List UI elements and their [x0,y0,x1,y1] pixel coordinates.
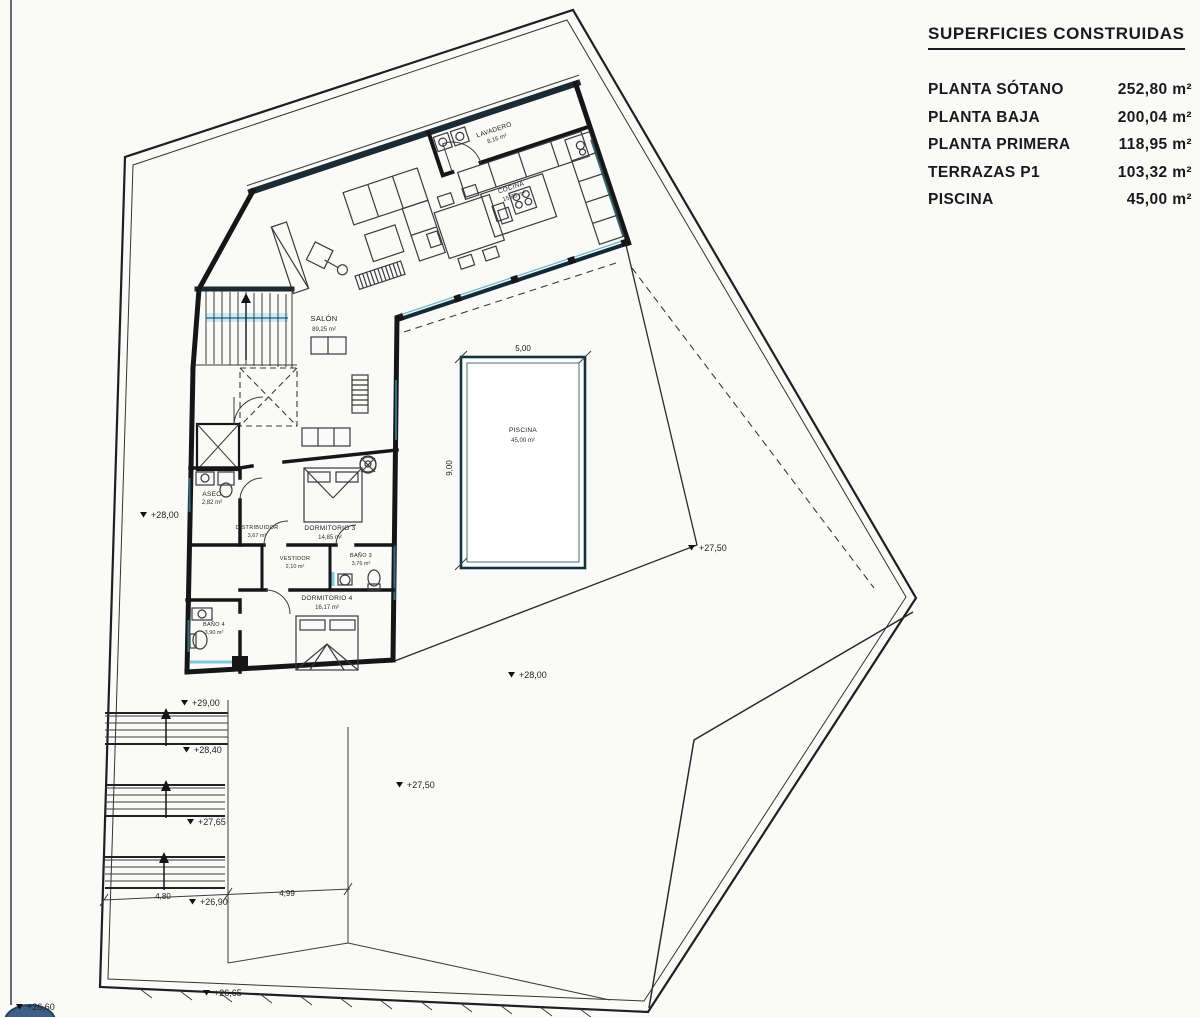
legend-row: PISCINA 45,00 m² [928,186,1192,214]
level-stair-landing1: +28,40 [194,745,222,755]
setback-dashed-line [632,268,874,588]
room-label-bano4: BAÑO 4 [203,621,225,628]
room-area-vestidor: 2,10 m² [286,564,305,570]
level-stair-bottom: +26,90 [200,897,228,907]
page-artifacts [5,0,55,1017]
room-label-bano3: BAÑO 3 [350,552,372,559]
interior-stair [193,289,297,470]
room-label-dormitorio4: DORMITORIO 4 [301,595,352,602]
legend-value: 45,00 m² [1127,186,1192,214]
rug [355,261,405,289]
door-arc-dormitorio4 [266,590,290,614]
armchair [302,238,337,273]
tv-unit [271,222,308,293]
room-label-aseo: ASEO [202,491,221,498]
legend-label: PLANTA SÓTANO [928,76,1064,104]
level-marker-icon [187,819,194,825]
living-kitchen-wing: LAVADERO 8,16 m² COCINA 15,88 m² [247,75,635,353]
level-marker-icon [508,672,515,678]
level-east-garden: +27,50 [699,543,727,553]
level-marker-icon [396,782,403,788]
coffee-table [365,225,404,262]
floor-lamp [324,254,348,279]
ceiling-fan-icon [360,457,376,473]
legend-value: 103,32 m² [1118,159,1192,187]
room-area-distribuidor: 3,67 m² [248,533,267,539]
legend-row: PLANTA BAJA 200,04 m² [928,104,1192,132]
level-west-terrace: +28,00 [151,510,179,520]
room-area-dormitorio3: 14,85 m² [318,535,342,541]
top-wing-walls: LAVADERO 8,16 m² COCINA 15,88 m² [247,75,635,353]
bedroom-wing: ASEO 2,82 m² DISTRIBUIDOR 3,67 m² DORMIT… [187,318,397,672]
bano3-fixtures [333,570,380,590]
legend-value: 200,04 m² [1118,104,1192,132]
level-south-terrace: +28,00 [519,670,547,680]
west-facade-wall [199,191,253,289]
legend-value: 118,95 m² [1119,131,1192,159]
bed-dormitorio3 [304,468,362,522]
room-label-dormitorio3: DORMITORIO 3 [304,525,355,532]
level-marker-icon [189,899,196,905]
dim-stair-width: 4,80 [155,892,171,901]
scanned-floor-plan-page: { "legend": { "title": "SUPERFICIES CONS… [0,0,1200,1017]
exterior-stairs: 4,80 4,99 [100,700,610,1000]
legend-label: TERRAZAS P1 [928,159,1040,187]
legend-row: TERRAZAS P1 103,32 m² [928,159,1192,187]
level-garden-lowest: +26,60 [27,1002,55,1012]
legend-value: 252,80 m² [1118,76,1192,104]
door-arc-aseo [240,478,262,500]
room-label-vestidor: VESTIDOR [280,556,311,562]
level-stair-landing2: +27,65 [198,817,226,827]
legend-title: SUPERFICIES CONSTRUIDAS [928,24,1185,50]
dim-pool-depth: 9,00 [445,460,454,476]
room-label-distribuidor: DISTRIBUIDOR [235,525,278,531]
room-label-salon: SALÓN [311,314,338,323]
room-area-dormitorio4: 16,17 m² [315,605,339,611]
room-label-piscina: PISCINA [509,427,537,434]
legend-label: PLANTA PRIMERA [928,131,1071,159]
dim-path-width: 4,99 [279,889,295,898]
areas-legend: SUPERFICIES CONSTRUIDAS PLANTA SÓTANO 25… [928,24,1192,214]
level-marker-icon [183,747,190,753]
level-path: +27,50 [407,780,435,790]
legend-row: PLANTA PRIMERA 118,95 m² [928,131,1192,159]
elevator-shaft [197,424,239,470]
legend-label: PLANTA BAJA [928,104,1040,132]
stair-void-dashed [240,368,297,426]
swimming-pool: PISCINA 45,00 m² 5,00 9,00 [445,344,591,570]
room-area-piscina: 45,00 m² [511,438,535,444]
room-area-salon: 89,25 m² [312,327,336,333]
stair-direction-arrows [159,708,171,890]
level-stair-top: +29,00 [192,698,220,708]
legend-label: PISCINA [928,186,994,214]
door-arc-hall [234,397,263,425]
dim-pool-width: 5,00 [515,344,531,353]
level-marker-icon [181,700,188,706]
level-garden-low: +26,65 [214,988,242,998]
legend-row: PLANTA SÓTANO 252,80 m² [928,76,1192,104]
level-marker-icon [140,512,147,518]
room-area-bano3: 3,76 m² [352,561,371,567]
stair-arrow [241,293,251,303]
room-area-aseo: 2,82 m² [202,500,222,506]
room-area-bano4: 3,90 m² [205,630,224,636]
sofa [343,168,445,277]
